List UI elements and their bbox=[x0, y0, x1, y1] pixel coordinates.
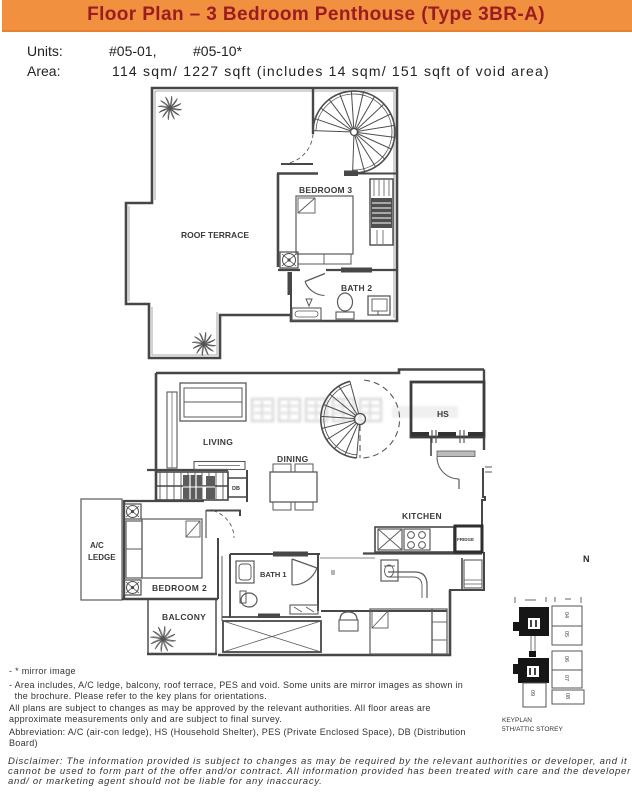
svg-text:05: 05 bbox=[563, 631, 569, 637]
svg-text:DB: DB bbox=[232, 486, 240, 492]
svg-text:BEDROOM 2: BEDROOM 2 bbox=[152, 583, 207, 593]
svg-text:BATH 1: BATH 1 bbox=[260, 570, 287, 579]
svg-text:A/C: A/C bbox=[90, 541, 104, 550]
svg-text:FRIDGE: FRIDGE bbox=[457, 537, 474, 542]
svg-text:ROOF TERRACE: ROOF TERRACE bbox=[181, 230, 249, 240]
svg-text:N: N bbox=[583, 554, 590, 564]
svg-text:08: 08 bbox=[564, 693, 570, 699]
svg-text:LEDGE: LEDGE bbox=[88, 553, 116, 562]
svg-text:07: 07 bbox=[563, 675, 569, 681]
svg-text:LIVING: LIVING bbox=[203, 437, 233, 447]
svg-text:DINING: DINING bbox=[277, 454, 309, 464]
svg-text:HS: HS bbox=[437, 409, 449, 419]
svg-text:KEYPLAN: KEYPLAN bbox=[502, 717, 532, 724]
svg-text:BALCONY: BALCONY bbox=[162, 612, 206, 622]
svg-text:BEDROOM 3: BEDROOM 3 bbox=[299, 185, 352, 195]
svg-text:5TH/ATTIC STOREY: 5TH/ATTIC STOREY bbox=[502, 726, 563, 733]
svg-text:BATH 2: BATH 2 bbox=[341, 283, 372, 293]
svg-text:09: 09 bbox=[529, 690, 535, 696]
svg-text:04: 04 bbox=[563, 612, 569, 618]
svg-text:06: 06 bbox=[563, 656, 569, 662]
svg-text:KITCHEN: KITCHEN bbox=[402, 511, 442, 521]
